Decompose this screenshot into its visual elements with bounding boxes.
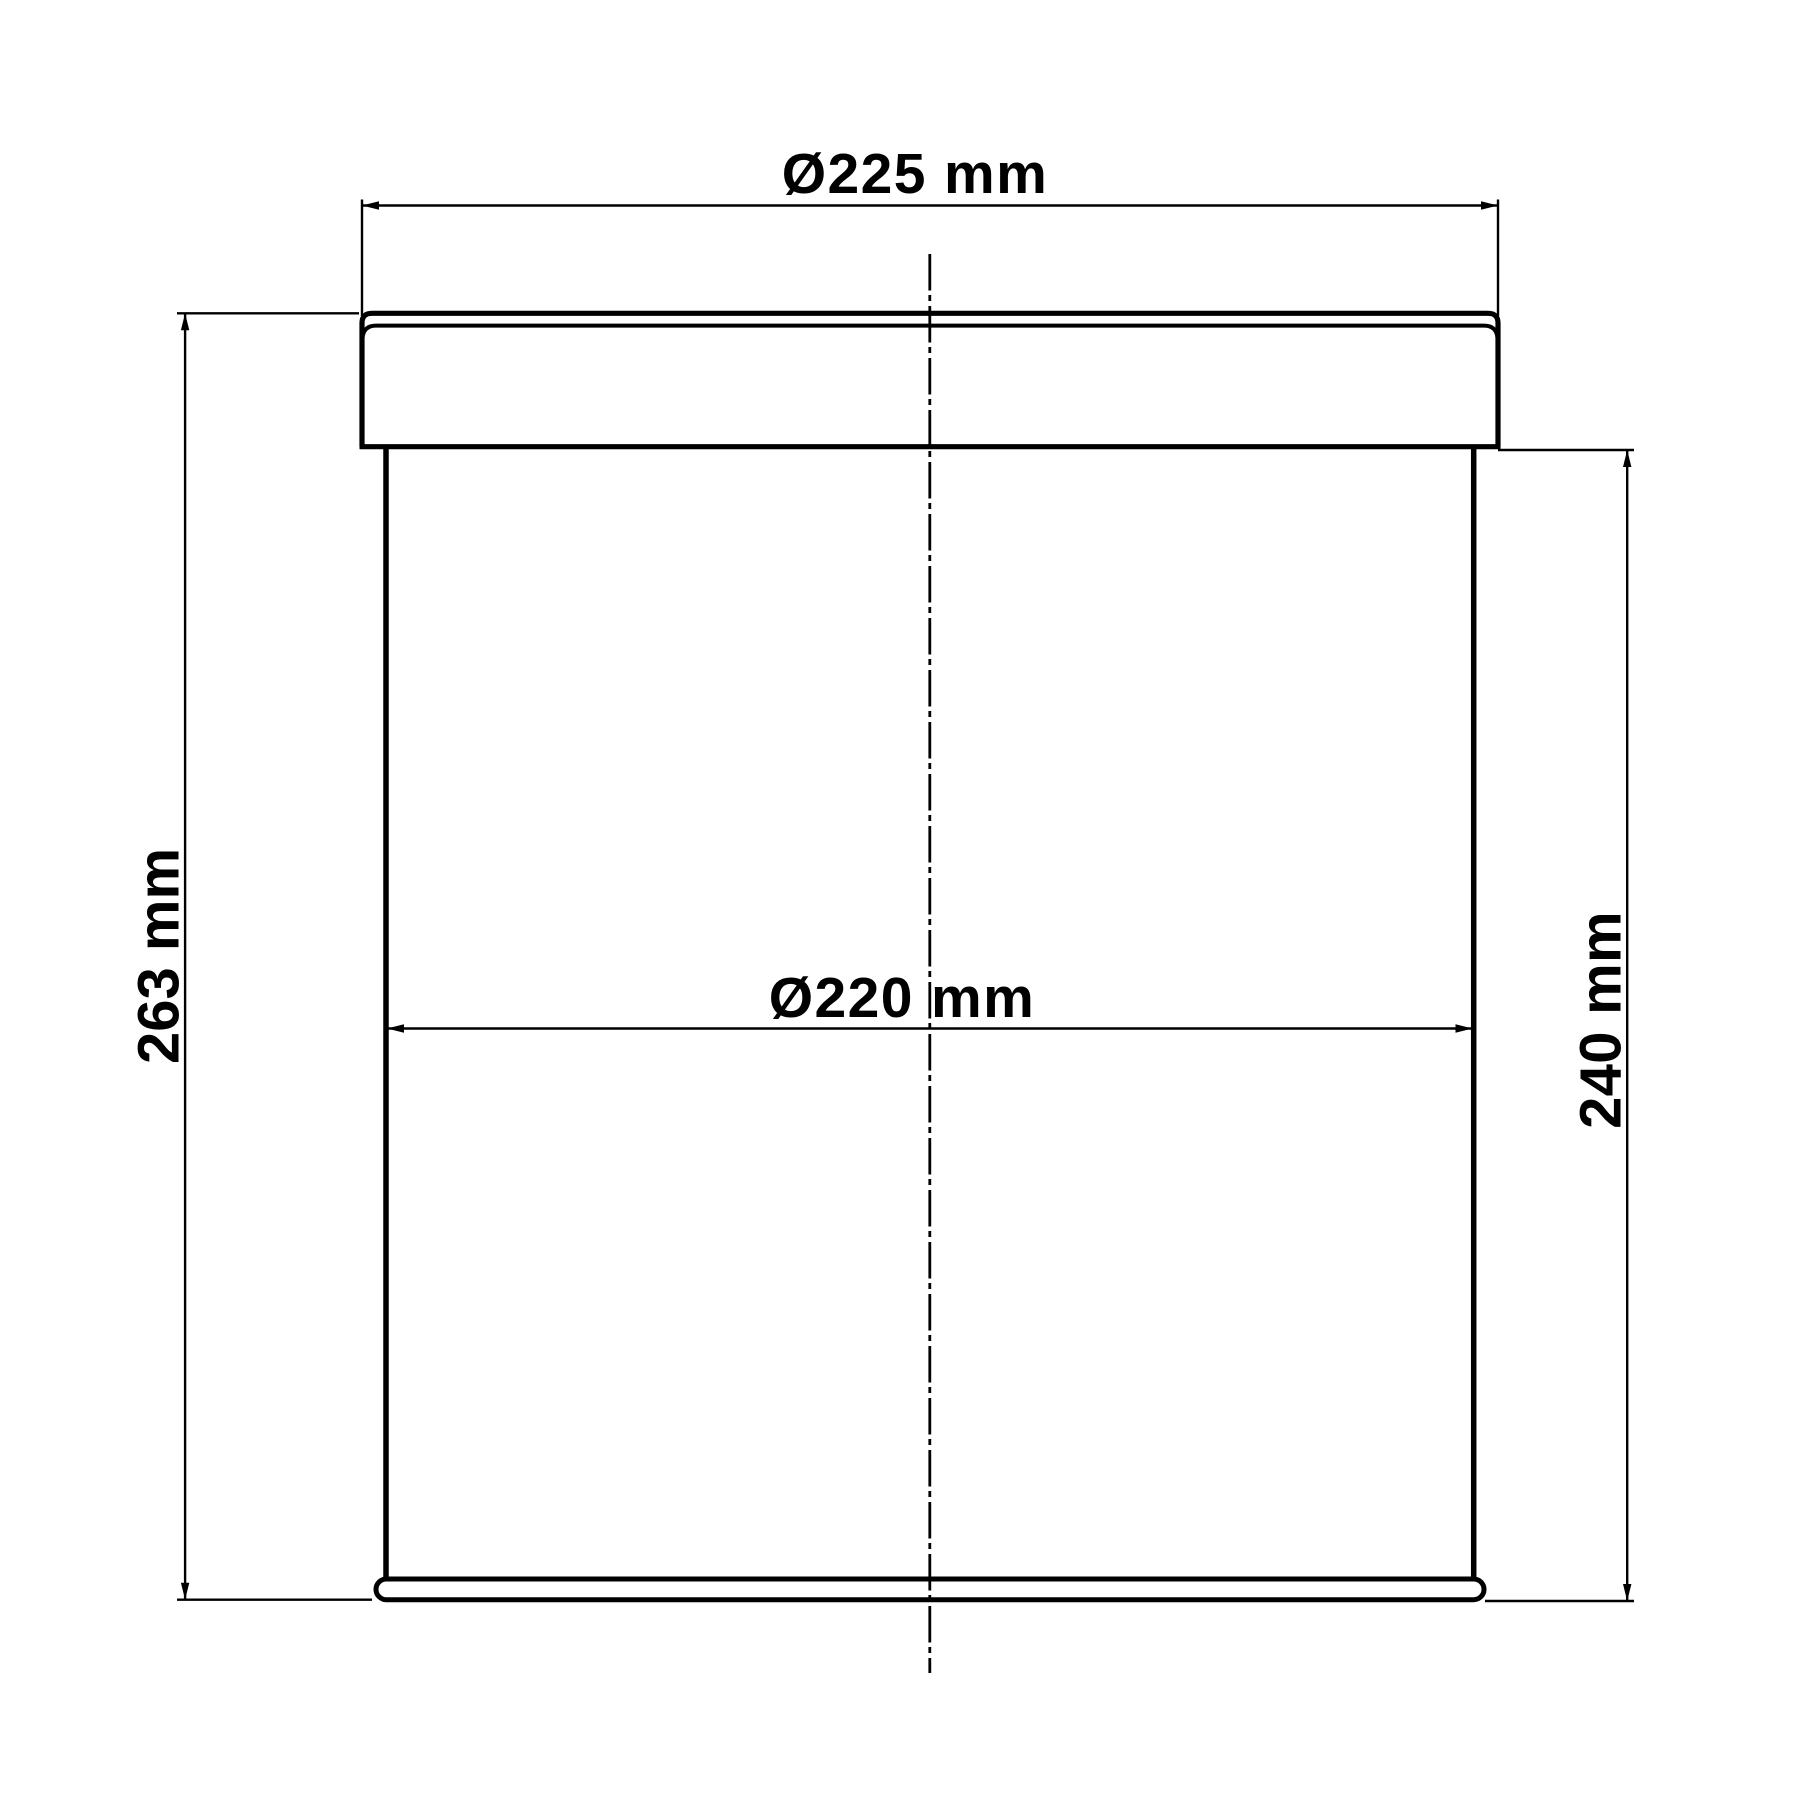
- svg-text:Ø220 mm: Ø220 mm: [769, 966, 1035, 1030]
- svg-text:Ø225 mm: Ø225 mm: [782, 142, 1048, 206]
- svg-text:263 mm: 263 mm: [127, 848, 192, 1064]
- svg-text:240 mm: 240 mm: [1569, 911, 1634, 1129]
